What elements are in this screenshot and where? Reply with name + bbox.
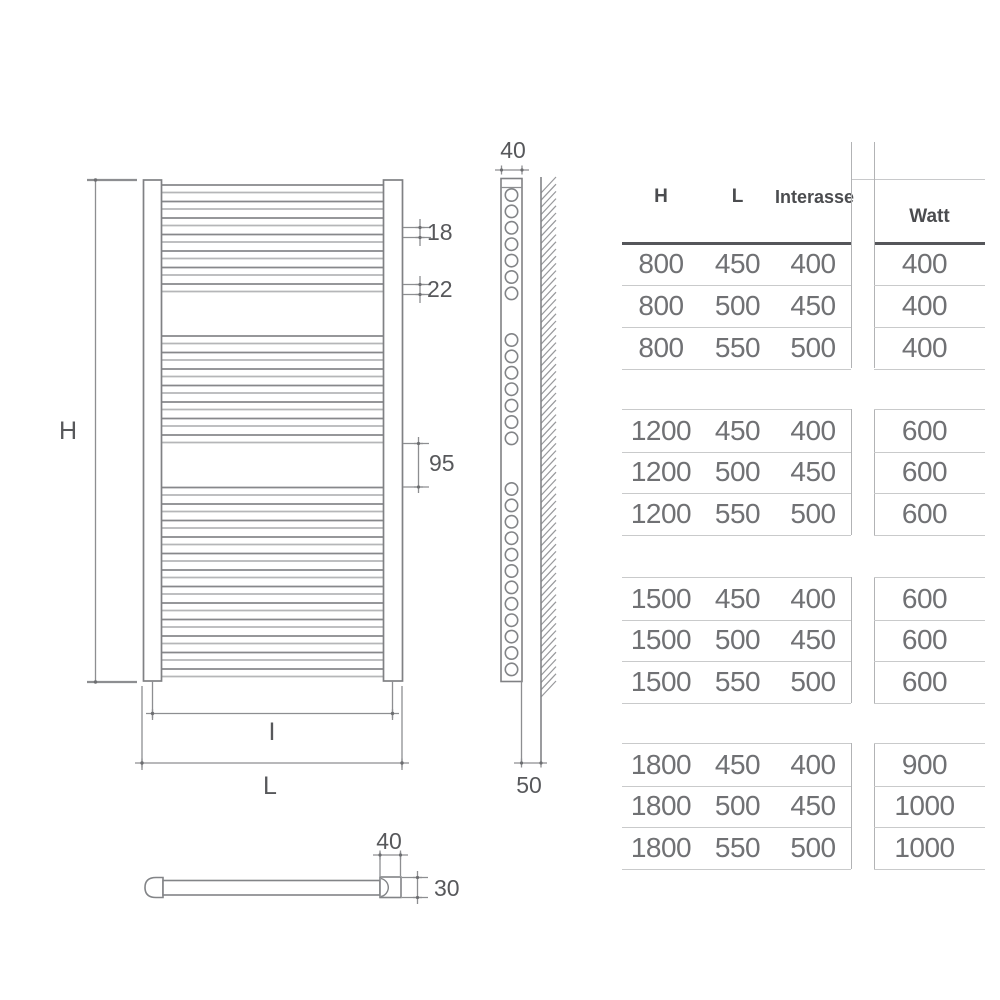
table-cell: 1000 (874, 785, 985, 828)
table-cell: 600 (874, 661, 985, 704)
table-row: 1500550500600 (622, 661, 985, 703)
dimension-I (146, 681, 399, 720)
dimension-40-top (373, 851, 408, 877)
watt-column-top-rule (851, 179, 985, 180)
table-cell: 450 (775, 785, 851, 828)
table-cell: 550 (700, 327, 775, 370)
table-cell: 400 (874, 285, 985, 328)
table-cell: 600 (874, 493, 985, 536)
dim-label-depth: 40 (500, 137, 526, 163)
table-group: 800450400400800500450400800550500400 (622, 243, 985, 369)
collector-section (380, 877, 401, 898)
table-gutter (851, 661, 874, 704)
table-cell: 600 (874, 619, 985, 662)
table-cell: 400 (775, 577, 851, 621)
table-gutter (851, 743, 874, 787)
table-cell: 450 (700, 243, 775, 286)
spec-sheet: H 18 22 (0, 0, 1000, 1000)
rung-top-profile (163, 881, 380, 896)
dim-label-interaxis: I (269, 718, 276, 746)
table-cell: 500 (700, 785, 775, 828)
table-cell: 1000 (874, 827, 985, 870)
table-cell: 800 (622, 285, 700, 328)
table-cell: 1800 (622, 827, 700, 870)
dim-label-tube: 18 (427, 219, 453, 245)
table-cell: 550 (700, 661, 775, 704)
table-cell: 450 (700, 577, 775, 621)
table-cell: 500 (775, 327, 851, 370)
table-cell: 600 (874, 451, 985, 494)
table-cell: 500 (775, 493, 851, 536)
table-gutter (851, 619, 874, 662)
table-cell: 600 (874, 577, 985, 621)
table-cell: 500 (700, 619, 775, 662)
dim-label-collector-width: 40 (376, 828, 402, 854)
table-cell: 500 (700, 285, 775, 328)
table-cell: 400 (874, 327, 985, 370)
col-header-watt: Watt (874, 202, 995, 232)
table-row: 1200550500600 (622, 493, 985, 535)
dimension-H (87, 180, 137, 682)
table-cell: 400 (874, 243, 985, 286)
col-header-interasse: Interasse (775, 182, 851, 212)
table-row: 800550500400 (622, 327, 985, 369)
radiator-rungs (162, 185, 384, 677)
table-group: 1800450400900180050045010001800550500100… (622, 743, 985, 869)
col-header-h: H (622, 182, 700, 212)
table-gutter (851, 285, 874, 328)
table-gutter (851, 577, 874, 621)
table-gutter (851, 785, 874, 828)
dim-label-width: L (263, 772, 277, 800)
table-gutter (851, 827, 874, 870)
table-row: 800450400400 (622, 243, 985, 285)
table-cell: 1500 (622, 577, 700, 621)
table-gutter (851, 493, 874, 536)
table-gutter (851, 243, 874, 286)
table-cell: 550 (700, 827, 775, 870)
table-row: 18005004501000 (622, 785, 985, 827)
dim-label-section-gap: 95 (429, 450, 455, 476)
table-cell: 450 (700, 743, 775, 787)
dim-label-tube-gap: 22 (427, 276, 453, 302)
dimension-95 (403, 437, 429, 493)
table-cell: 500 (775, 827, 851, 870)
spec-table: H L Interasse Watt 800450400400800500450… (622, 142, 985, 872)
left-collector-tube (144, 180, 162, 681)
table-cell: 400 (775, 409, 851, 453)
front-view: H 18 22 (59, 178, 455, 800)
table-gutter (851, 327, 874, 370)
dim-label-height: H (59, 417, 77, 445)
table-gutter (851, 409, 874, 453)
table-cell: 1800 (622, 743, 700, 787)
table-cell: 1200 (622, 493, 700, 536)
table-cell: 450 (775, 285, 851, 328)
table-cell: 1200 (622, 409, 700, 453)
dim-label-collector-depth: 30 (434, 875, 460, 901)
table-group: 120045040060012005004506001200550500600 (622, 409, 985, 535)
table-row: 800500450400 (622, 285, 985, 327)
rung-end-cap (145, 878, 163, 898)
table-cell: 450 (700, 409, 775, 453)
table-row: 18005505001000 (622, 827, 985, 869)
table-row: 1200500450600 (622, 451, 985, 493)
table-group: 150045040060015005004506001500550500600 (622, 577, 985, 703)
table-cell: 1500 (622, 619, 700, 662)
dimension-30 (402, 871, 428, 904)
table-cell: 550 (700, 493, 775, 536)
table-row: 1200450400600 (622, 409, 985, 451)
top-view: 40 30 (145, 828, 460, 904)
side-view: 40 50 (495, 137, 556, 798)
table-row: 1800450400900 (622, 743, 985, 785)
table-cell: 500 (700, 451, 775, 494)
table-cell: 1800 (622, 785, 700, 828)
table-cell: 1500 (622, 661, 700, 704)
table-cell: 800 (622, 243, 700, 286)
col-header-l: L (700, 182, 775, 212)
dim-label-bottom: 50 (516, 772, 542, 798)
table-cell: 900 (874, 743, 985, 787)
table-cell: 600 (874, 409, 985, 453)
table-cell: 450 (775, 619, 851, 662)
table-cell: 450 (775, 451, 851, 494)
table-cell: 400 (775, 743, 851, 787)
table-cell: 1200 (622, 451, 700, 494)
table-cell: 400 (775, 243, 851, 286)
table-cell: 800 (622, 327, 700, 370)
table-row: 1500500450600 (622, 619, 985, 661)
right-collector-tube (384, 180, 403, 681)
wall-hatching (541, 177, 556, 697)
table-row: 1500450400600 (622, 577, 985, 619)
table-gutter (851, 451, 874, 494)
table-cell: 500 (775, 661, 851, 704)
